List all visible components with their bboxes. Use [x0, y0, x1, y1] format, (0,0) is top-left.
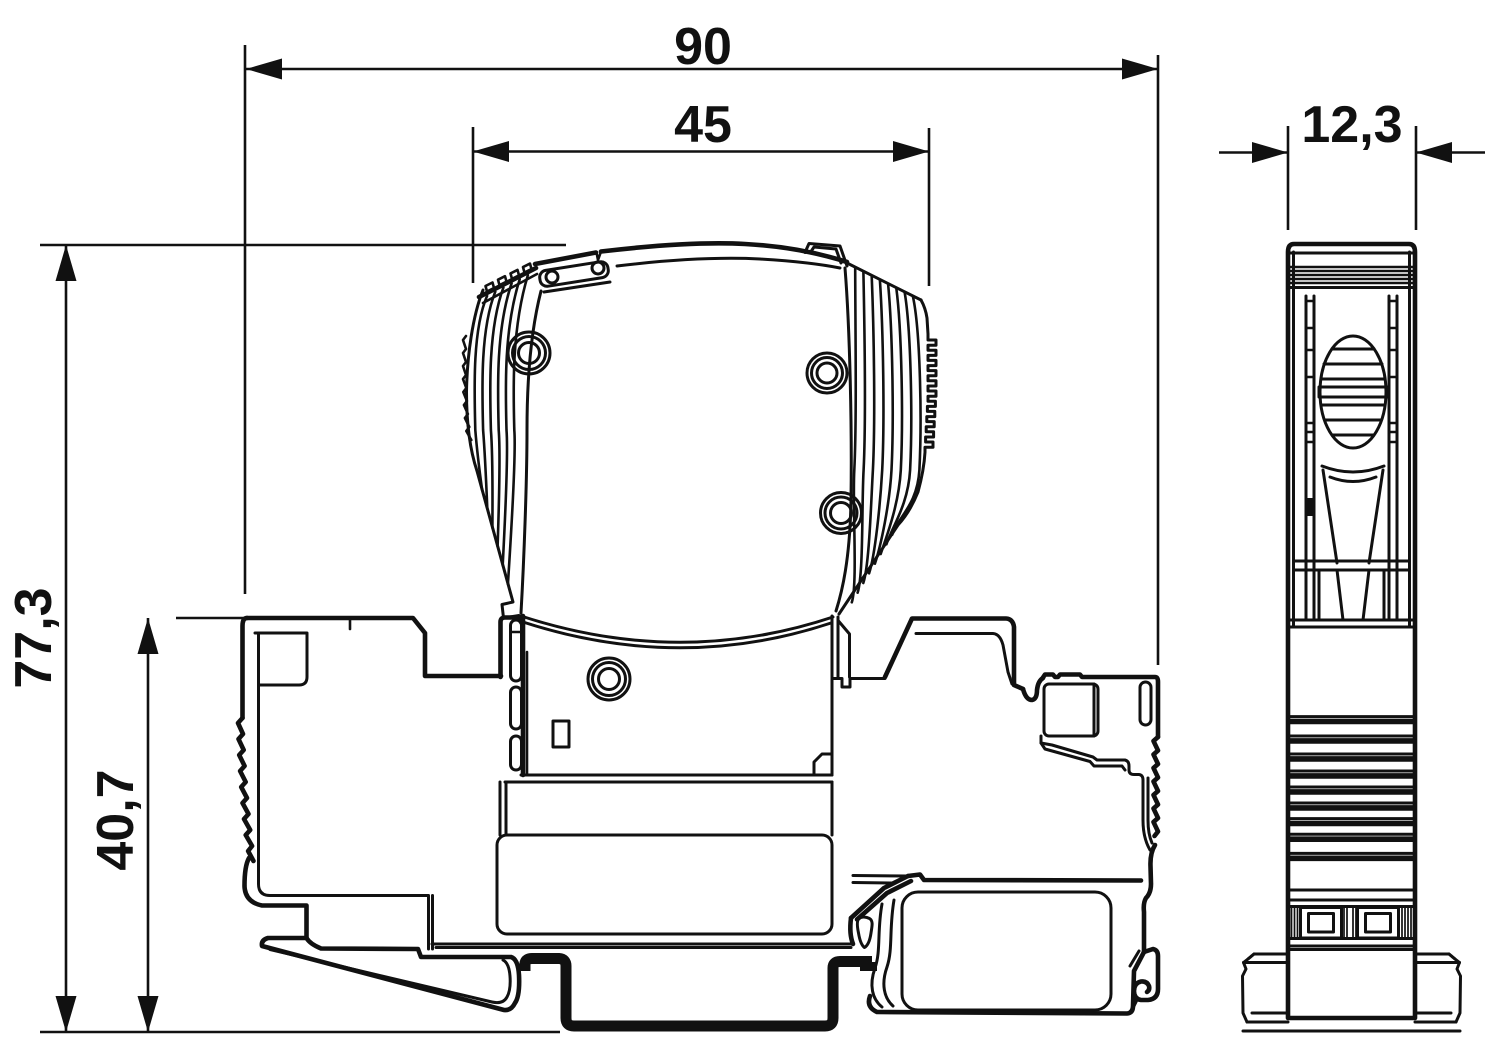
svg-text:90: 90 [674, 18, 732, 76]
svg-text:45: 45 [674, 96, 732, 154]
svg-text:77,3: 77,3 [5, 587, 63, 688]
svg-text:40,7: 40,7 [87, 769, 145, 870]
svg-text:12,3: 12,3 [1301, 96, 1402, 154]
